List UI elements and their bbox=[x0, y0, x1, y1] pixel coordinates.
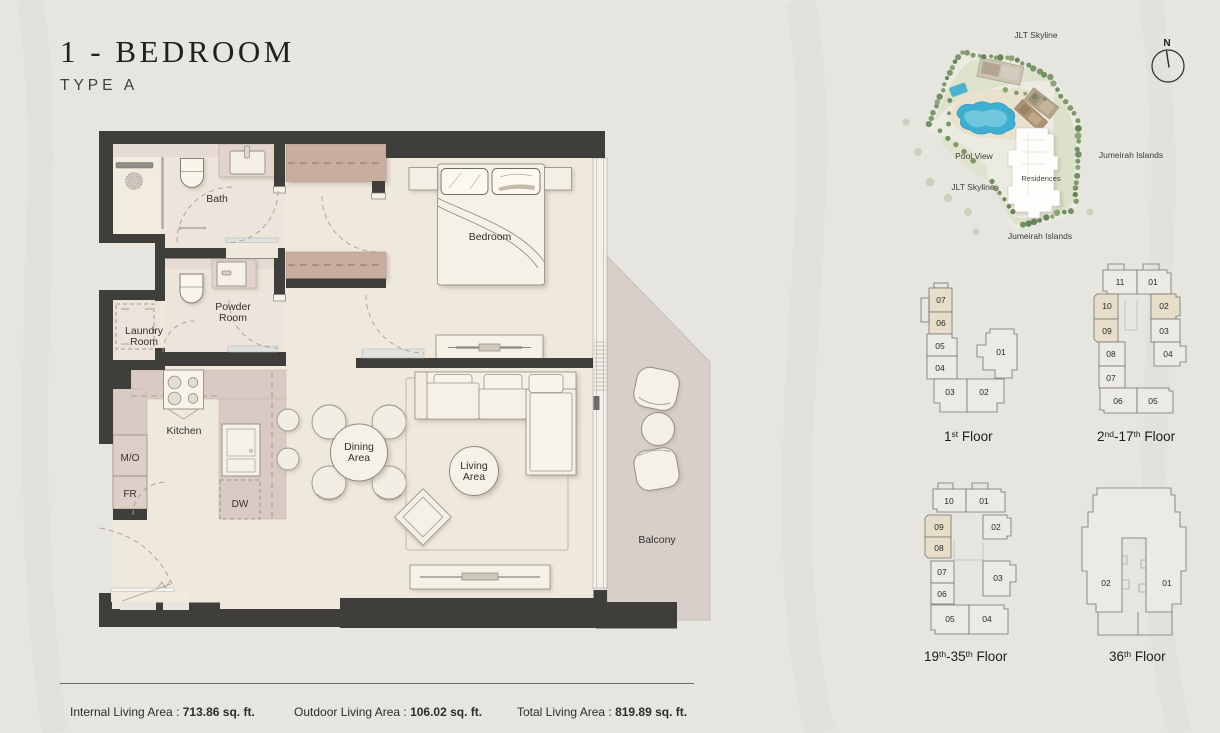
svg-text:Jumeirah Islands: Jumeirah Islands bbox=[1008, 231, 1072, 241]
svg-text:03: 03 bbox=[945, 387, 955, 397]
svg-text:06: 06 bbox=[936, 318, 946, 328]
svg-text:Residences: Residences bbox=[1021, 174, 1060, 183]
svg-text:05: 05 bbox=[935, 341, 945, 351]
svg-text:01: 01 bbox=[979, 496, 989, 506]
svg-text:Bath: Bath bbox=[206, 193, 228, 205]
svg-text:04: 04 bbox=[935, 363, 945, 373]
svg-text:05: 05 bbox=[1148, 396, 1158, 406]
svg-text:Balcony: Balcony bbox=[638, 534, 676, 546]
svg-text:08: 08 bbox=[1106, 349, 1116, 359]
svg-text:03: 03 bbox=[993, 573, 1003, 583]
svg-text:N: N bbox=[1163, 38, 1170, 49]
svg-text:07: 07 bbox=[936, 295, 946, 305]
svg-text:Pool View: Pool View bbox=[955, 151, 994, 161]
svg-text:03: 03 bbox=[1159, 326, 1169, 336]
svg-text:10: 10 bbox=[1102, 301, 1112, 311]
svg-text:Outdoor Living Area : 106.02 s: Outdoor Living Area : 106.02 sq. ft. bbox=[294, 705, 482, 719]
svg-text:01: 01 bbox=[996, 347, 1006, 357]
svg-text:02: 02 bbox=[979, 387, 989, 397]
svg-text:01: 01 bbox=[1162, 578, 1172, 588]
svg-text:Bedroom: Bedroom bbox=[469, 231, 512, 243]
svg-text:JLT Skyline: JLT Skyline bbox=[951, 182, 994, 192]
svg-text:10: 10 bbox=[944, 496, 954, 506]
svg-text:1 - BEDROOM: 1 - BEDROOM bbox=[60, 34, 295, 69]
svg-text:02: 02 bbox=[1101, 578, 1111, 588]
svg-text:JLT Skyline: JLT Skyline bbox=[1014, 30, 1057, 40]
svg-text:06: 06 bbox=[937, 589, 947, 599]
svg-text:Room: Room bbox=[130, 336, 158, 348]
svg-text:09: 09 bbox=[1102, 326, 1112, 336]
svg-text:Area: Area bbox=[463, 471, 485, 483]
svg-text:Total Living Area : 819.89 sq.: Total Living Area : 819.89 sq. ft. bbox=[517, 705, 687, 719]
svg-text:08: 08 bbox=[934, 543, 944, 553]
svg-text:05: 05 bbox=[945, 614, 955, 624]
svg-text:Jumeirah Islands: Jumeirah Islands bbox=[1099, 150, 1163, 160]
svg-text:04: 04 bbox=[1163, 349, 1173, 359]
svg-text:02: 02 bbox=[991, 522, 1001, 532]
svg-text:36th Floor: 36th Floor bbox=[1109, 649, 1166, 664]
svg-text:02: 02 bbox=[1159, 301, 1169, 311]
svg-text:04: 04 bbox=[982, 614, 992, 624]
svg-text:07: 07 bbox=[1106, 373, 1116, 383]
svg-text:09: 09 bbox=[934, 522, 944, 532]
svg-text:DW: DW bbox=[232, 499, 249, 510]
svg-text:Area: Area bbox=[348, 452, 370, 464]
svg-text:Kitchen: Kitchen bbox=[166, 425, 201, 437]
svg-text:FR: FR bbox=[123, 489, 136, 500]
svg-text:06: 06 bbox=[1113, 396, 1123, 406]
svg-text:07: 07 bbox=[937, 567, 947, 577]
svg-text:Room: Room bbox=[219, 312, 247, 324]
svg-text:Internal Living Area : 713.86: Internal Living Area : 713.86 sq. ft. bbox=[70, 705, 255, 719]
svg-text:1st Floor: 1st Floor bbox=[944, 429, 993, 444]
svg-text:01: 01 bbox=[1148, 277, 1158, 287]
svg-text:M/O: M/O bbox=[121, 453, 140, 464]
svg-text:11: 11 bbox=[1116, 277, 1125, 287]
svg-text:TYPE A: TYPE A bbox=[60, 77, 138, 94]
